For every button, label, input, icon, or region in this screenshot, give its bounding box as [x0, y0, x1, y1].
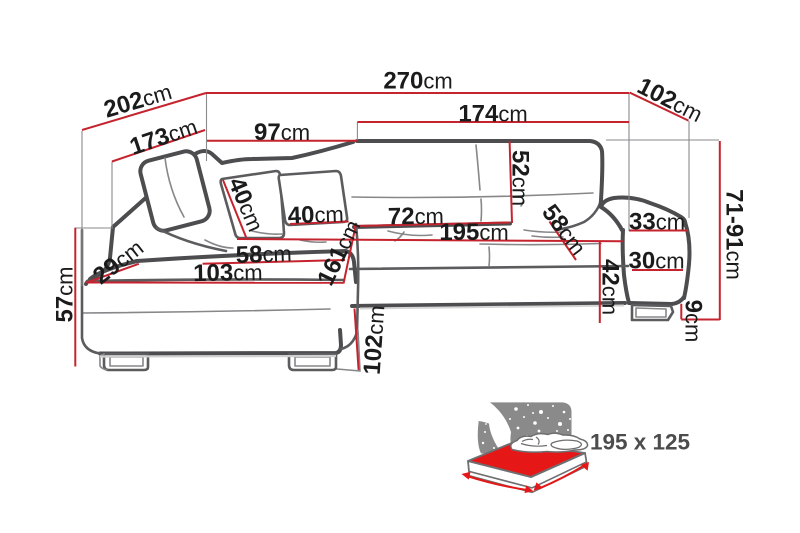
svg-text:103cm: 103cm — [193, 259, 263, 287]
svg-text:195cm: 195cm — [439, 219, 508, 246]
svg-text:270cm: 270cm — [383, 68, 452, 95]
svg-text:71-91cm: 71-91cm — [721, 189, 748, 280]
svg-text:72cm: 72cm — [388, 203, 444, 231]
svg-text:97cm: 97cm — [254, 119, 310, 146]
svg-text:195 x 125: 195 x 125 — [590, 430, 690, 455]
svg-text:9cm: 9cm — [680, 300, 707, 343]
svg-text:57cm: 57cm — [52, 266, 79, 322]
svg-text:40cm: 40cm — [287, 201, 344, 230]
svg-text:102cm: 102cm — [359, 304, 391, 375]
svg-text:30cm: 30cm — [628, 248, 684, 275]
svg-text:33cm: 33cm — [629, 209, 685, 236]
svg-text:42cm: 42cm — [597, 259, 624, 315]
svg-text:52cm: 52cm — [507, 150, 534, 206]
svg-text:174cm: 174cm — [458, 101, 527, 128]
